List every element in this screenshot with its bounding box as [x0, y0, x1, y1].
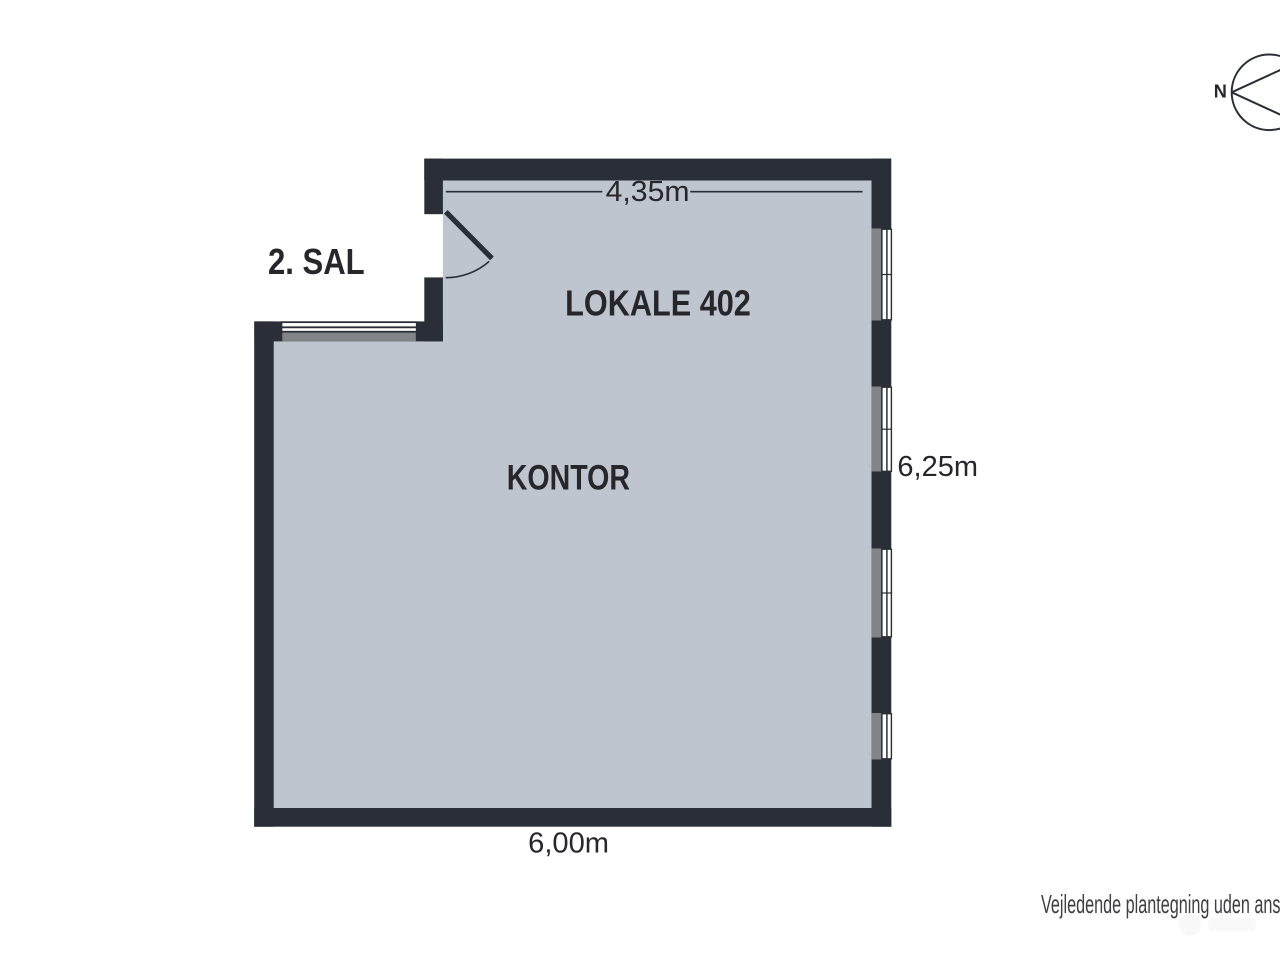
- svg-text:4,35m: 4,35m: [606, 176, 690, 208]
- svg-text:6,25m: 6,25m: [897, 451, 978, 483]
- svg-text:2. SAL: 2. SAL: [268, 241, 365, 282]
- svg-text:LOKALE 402: LOKALE 402: [565, 284, 751, 324]
- svg-text:Vejledende plantegning uden an: Vejledende plantegning uden ansvar: [1041, 891, 1280, 919]
- svg-text:N: N: [1214, 82, 1227, 102]
- svg-text:KONTOR: KONTOR: [507, 459, 630, 498]
- svg-text:6,00m: 6,00m: [528, 827, 609, 859]
